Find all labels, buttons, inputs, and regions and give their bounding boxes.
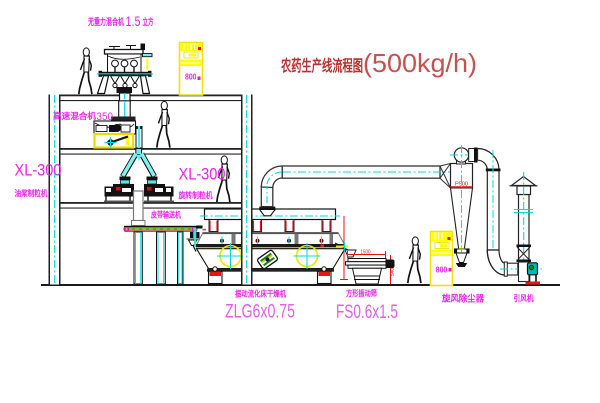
svg-text:800: 800	[185, 72, 197, 82]
svg-text:800: 800	[436, 265, 448, 275]
svg-text:无重力混合机: 无重力混合机	[87, 16, 124, 27]
svg-text:方形振动筛: 方形振动筛	[346, 288, 377, 298]
svg-text:540: 540	[390, 268, 396, 276]
svg-text:1500: 1500	[361, 250, 371, 256]
svg-text:油桨制粒机: 油桨制粒机	[15, 188, 48, 198]
svg-text:旋风除尘器: 旋风除尘器	[441, 293, 485, 304]
svg-text:立方: 立方	[143, 16, 154, 27]
svg-text:XL-300: XL-300	[179, 166, 226, 184]
svg-text:引风机: 引风机	[514, 293, 534, 303]
svg-text:350: 350	[97, 111, 114, 123]
svg-text:XL-300: XL-300	[15, 162, 62, 180]
svg-text:1.5: 1.5	[126, 13, 141, 29]
svg-text:振动流化床干燥机: 振动流化床干燥机	[235, 289, 286, 299]
svg-text:农药生产线流程图: 农药生产线流程图	[280, 56, 363, 75]
svg-text:ZLG6x0.75: ZLG6x0.75	[225, 302, 295, 323]
svg-text:FS0.6x1.5: FS0.6x1.5	[336, 302, 398, 323]
svg-text:(500kg/h): (500kg/h)	[363, 48, 477, 78]
svg-text:旋转制粒机: 旋转制粒机	[178, 190, 213, 200]
svg-text:高速混合机: 高速混合机	[53, 111, 96, 121]
svg-text:皮带输送机: 皮带输送机	[150, 210, 181, 220]
